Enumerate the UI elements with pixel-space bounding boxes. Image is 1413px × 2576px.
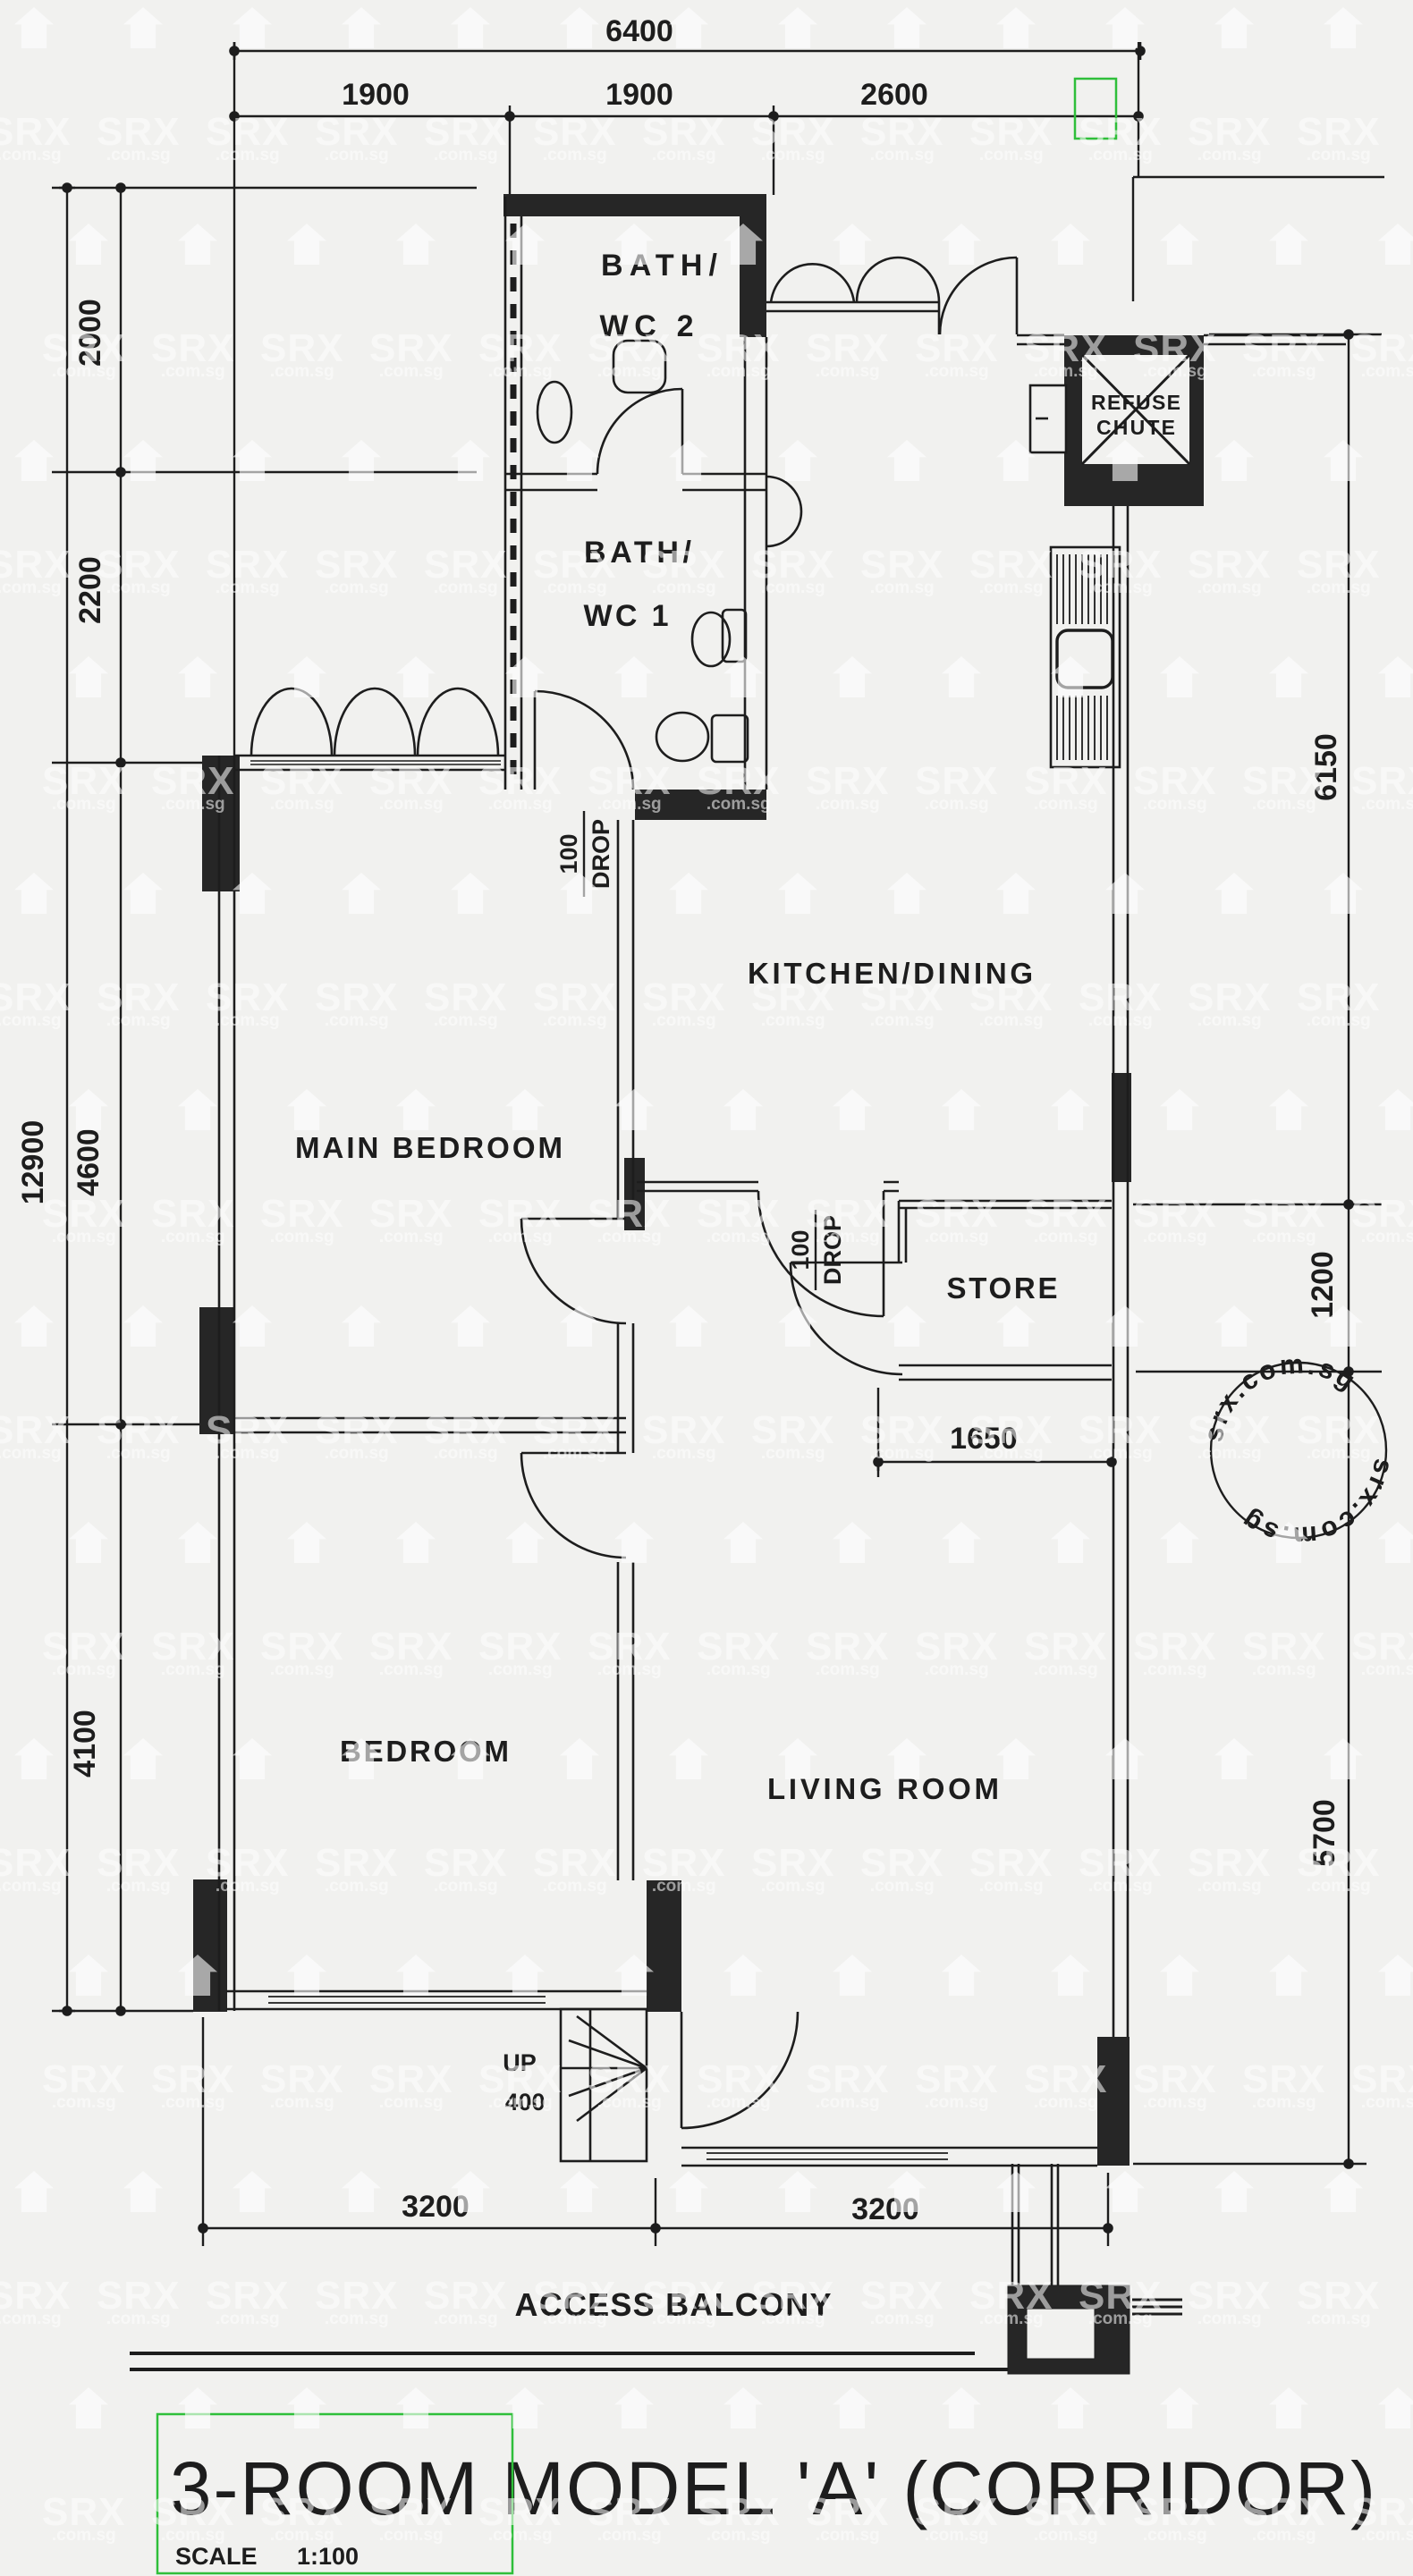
door-arc <box>681 2012 798 2128</box>
refuse-chute-label-2: CHUTE <box>1096 416 1175 439</box>
bedroom-label: BEDROOM <box>340 1735 510 1768</box>
column-living-corner <box>1097 2037 1130 2166</box>
wc1-toilet2-bowl <box>656 713 708 761</box>
door-arc <box>521 1219 626 1323</box>
bath-wc1-label-1: BATH/ <box>584 536 692 570</box>
corridor-window-arc <box>857 258 939 302</box>
kitchen-sink <box>1057 630 1113 688</box>
dim-5700: 5700 <box>1307 1799 1341 1867</box>
living-room-label: LIVING ROOM <box>767 1772 1000 1805</box>
floor-plan-drawing: REFUSE CHUTE BATH/ WC 2 BATH/ WC 1 KITCH… <box>0 0 1413 2576</box>
dim-6400: 6400 <box>605 14 673 48</box>
bath-top-wall <box>503 194 766 216</box>
svg-text:DROP: DROP <box>819 1215 846 1285</box>
annotation-box-top-right <box>1075 79 1116 139</box>
main-bedroom-label: MAIN BEDROOM <box>295 1131 563 1164</box>
walls-thick <box>193 194 1131 2166</box>
dim-4600: 4600 <box>72 1128 106 1196</box>
drop-label-kitchen: 100 DROP <box>787 1210 846 1290</box>
window-arc <box>418 688 498 756</box>
svg-text:srx.com.sg: srx.com.sg <box>1198 1349 1362 1444</box>
wc1-toilet2-cistern <box>712 715 748 762</box>
bath-bottom-wall <box>635 790 766 820</box>
scale-label: SCALE <box>175 2543 258 2570</box>
dim-12900: 12900 <box>16 1120 50 1205</box>
kitchen-dining-label: KITCHEN/DINING <box>748 957 1034 990</box>
svg-text:100: 100 <box>555 833 582 874</box>
dim-3200-a: 3200 <box>402 2190 470 2224</box>
column-kitchen-junction <box>624 1158 645 1230</box>
dim-6150: 6150 <box>1309 733 1343 801</box>
dim-4100: 4100 <box>68 1710 102 1778</box>
dim-2200: 2200 <box>73 556 107 624</box>
wc2-basin <box>537 382 571 443</box>
dim-1200: 1200 <box>1306 1251 1340 1319</box>
bath-right-upper-wall <box>740 194 766 337</box>
dim-1900-a: 1900 <box>342 78 410 112</box>
svg-text:srx.com.sg: srx.com.sg <box>1235 1457 1399 1551</box>
store-label: STORE <box>947 1271 1059 1305</box>
corridor-window-arc <box>771 264 854 302</box>
stamp-text-bottom: srx.com.sg <box>1235 1457 1399 1551</box>
title-block: 3-ROOM MODEL 'A' (CORRIDOR) SCALE 1:100 <box>157 2414 1377 2573</box>
bath-wc2-label-2: WC 2 <box>600 309 694 343</box>
svg-text:DROP: DROP <box>588 819 614 889</box>
refuse-chute: REFUSE CHUTE <box>1030 335 1204 506</box>
plan-title: 3-ROOM MODEL 'A' (CORRIDOR) <box>170 2446 1377 2530</box>
door-arc <box>791 1263 902 1374</box>
svg-text:100: 100 <box>787 1229 814 1270</box>
kitchen-basin <box>766 477 801 546</box>
access-balcony-label: ACCESS BALCONY <box>515 2286 833 2323</box>
drop-label-bedroom: 100 DROP <box>555 811 614 897</box>
scale-value: 1:100 <box>297 2543 359 2570</box>
up-value-label: 400 <box>504 2089 545 2116</box>
door-arc <box>597 389 682 474</box>
dim-1650: 1650 <box>950 1422 1018 1456</box>
bath-wc1-label-2: WC 1 <box>584 599 669 633</box>
balcony-end-opening <box>1027 2309 1095 2359</box>
door-arc <box>940 258 1017 334</box>
srx-stamp: srx.com.sg srx.com.sg <box>1198 1349 1398 1550</box>
entrance-landing <box>561 2009 647 2161</box>
dim-3200-b: 3200 <box>851 2192 919 2226</box>
bath-wc2-label-1: BATH/ <box>601 249 718 283</box>
floor-plan-page: REFUSE CHUTE BATH/ WC 2 BATH/ WC 1 KITCH… <box>0 0 1413 2576</box>
wc2-toilet <box>613 341 665 393</box>
refuse-chute-label-1: REFUSE <box>1091 391 1180 414</box>
door-arc <box>535 691 633 790</box>
door-arc <box>521 1453 626 1558</box>
wc1-toilet-bowl <box>692 612 730 666</box>
column-left-middle <box>199 1307 235 1434</box>
window-arc <box>251 688 332 756</box>
dim-1900-b: 1900 <box>605 78 673 112</box>
up-label: UP <box>503 2049 537 2076</box>
dim-2600: 2600 <box>860 78 928 112</box>
column-left-lower <box>193 1879 227 2012</box>
window-arc <box>334 688 415 756</box>
dim-2000: 2000 <box>73 299 107 367</box>
stamp-text-top: srx.com.sg <box>1198 1349 1362 1444</box>
column-entrance <box>647 1880 681 2012</box>
